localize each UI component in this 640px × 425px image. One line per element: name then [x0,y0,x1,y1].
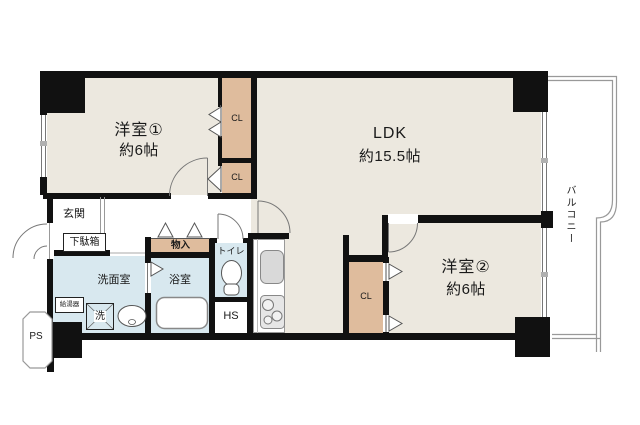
room1-size: 約6帖 [79,142,199,161]
toilet-label: トイレ [211,246,251,257]
closet1-lower-label: CL [222,172,252,183]
ps-label: PS [23,331,49,344]
shoe-cabinet-label: 下駄箱 [70,237,100,248]
room1-name: 洋室① [79,121,199,141]
hs-label: HS [211,310,251,324]
water-heater: 給湯器 [55,297,84,313]
washing-machine-label: 洗 [94,311,106,322]
toilet-icon [222,261,242,296]
washroom-label: 洗面室 [74,274,154,288]
stove-icon [261,296,285,329]
entrance-label: 玄関 [44,208,104,222]
room2-name: 洋室② [406,258,526,278]
balcony-railing [548,77,617,353]
water-heater-label: 給湯器 [60,301,80,308]
balcony-label: バルコニー [562,185,577,249]
room2-size: 約6帖 [406,281,526,300]
western-room2-door-arc [389,223,418,252]
bathroom-label: 浴室 [151,274,209,288]
ldk-size: 約15.5帖 [320,148,460,167]
vanity-sink-icon [118,306,146,327]
toilet-door-arc [218,214,243,239]
floor-plan: 洋室① 約6帖 LDK 約15.5帖 洋室② 約6帖 玄関 下駄箱 物入 トイレ… [0,0,640,425]
closet1-upper-label: CL [222,113,252,124]
storage-label: 物入 [151,240,210,252]
shoe-cabinet: 下駄箱 [63,233,106,252]
entrance-door-arc [13,223,50,259]
window-latch-icon [40,141,548,277]
kitchen-sink-icon [261,251,284,284]
bathtub-icon [157,298,208,329]
closet2-label: CL [349,291,383,302]
ldk-door-arc [258,201,290,233]
western-room1-door-arc [170,158,208,196]
washing-machine: 洗 [86,303,114,330]
ldk-name: LDK [330,124,450,144]
